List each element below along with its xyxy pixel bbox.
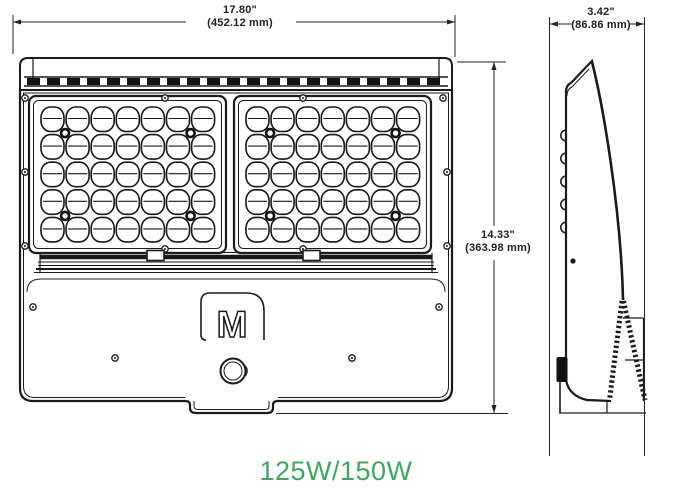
side-back-hatched [610, 301, 623, 400]
panel-screw [392, 212, 400, 220]
led-lens [167, 162, 190, 187]
led-lens [346, 162, 369, 187]
width-metric: (452.12 mm) [170, 17, 310, 30]
led-lens [192, 190, 215, 215]
led-lens [41, 107, 64, 132]
panel-screw [61, 129, 69, 137]
depth-metric: (86.86 mm) [545, 19, 657, 32]
led-lens [116, 135, 139, 160]
mounting-knockout [221, 359, 248, 384]
led-lens [141, 190, 164, 215]
led-lens [91, 162, 114, 187]
front-view: M [20, 58, 452, 413]
led-lens [192, 107, 215, 132]
led-lens [91, 135, 114, 160]
led-lens [397, 190, 420, 215]
dimensional-drawing: M [0, 0, 680, 497]
led-lens [141, 107, 164, 132]
led-lens [116, 107, 139, 132]
led-lens-grid-left [41, 107, 215, 242]
side-screw [570, 258, 575, 263]
svg-text:M: M [217, 304, 248, 345]
led-lens [192, 217, 215, 242]
led-lens [346, 107, 369, 132]
panel-screw [266, 212, 274, 220]
led-lens [271, 190, 294, 215]
led-lens [321, 135, 344, 160]
height-inches: 14.33" [456, 229, 540, 242]
led-lens [41, 190, 64, 215]
led-lens [271, 107, 294, 132]
led-lens [246, 162, 269, 187]
led-lens [91, 107, 114, 132]
led-lens [192, 135, 215, 160]
led-lens [141, 135, 164, 160]
led-lens [66, 217, 89, 242]
led-lens [91, 190, 114, 215]
led-lens [296, 162, 319, 187]
led-lens [116, 162, 139, 187]
led-lens [346, 190, 369, 215]
mount-bracket [623, 318, 644, 401]
led-lens [372, 217, 395, 242]
led-lens [271, 217, 294, 242]
led-lens-grid-right [246, 107, 420, 242]
latch-tab-right [303, 251, 320, 261]
line-art: M [0, 0, 680, 497]
side-view [557, 61, 647, 413]
led-lens [296, 135, 319, 160]
led-lens [41, 135, 64, 160]
led-lens [246, 217, 269, 242]
led-lens [66, 162, 89, 187]
led-lens [246, 190, 269, 215]
panel-screw [266, 129, 274, 137]
width-inches: 17.80" [170, 4, 310, 17]
led-lens [116, 217, 139, 242]
led-lens [397, 217, 420, 242]
led-lens [321, 190, 344, 215]
led-lens [271, 162, 294, 187]
panel-screw [61, 212, 69, 220]
led-lens [321, 162, 344, 187]
depth-dimension: 3.42" (86.86 mm) [545, 6, 657, 32]
led-lens [167, 135, 190, 160]
led-lens [296, 107, 319, 132]
side-back-curve [592, 62, 623, 300]
led-lens [372, 135, 395, 160]
led-lens [271, 135, 294, 160]
led-lens [167, 190, 190, 215]
led-lens [246, 135, 269, 160]
led-lens [167, 107, 190, 132]
led-lens [321, 217, 344, 242]
led-lens [66, 135, 89, 160]
cable-clamp [557, 357, 568, 382]
led-lens [346, 217, 369, 242]
brand-logo-m: M [201, 293, 264, 345]
led-lens [397, 162, 420, 187]
width-dimension: 17.80" (452.12 mm) [170, 4, 310, 30]
wattage-label: 125W/150W [216, 456, 456, 487]
latch-tab-left [147, 251, 164, 261]
led-lens [91, 217, 114, 242]
led-lens [397, 135, 420, 160]
panel-screw [187, 212, 195, 220]
led-lens [372, 107, 395, 132]
led-lens [167, 217, 190, 242]
led-lens [296, 190, 319, 215]
led-lens [192, 162, 215, 187]
led-lens [66, 107, 89, 132]
led-lens [296, 217, 319, 242]
led-lens [41, 217, 64, 242]
mount-arm-hatched [624, 301, 646, 400]
led-lens [41, 162, 64, 187]
top-heatsink-cap [20, 58, 452, 93]
led-lens [321, 107, 344, 132]
led-lens [141, 217, 164, 242]
led-lens [397, 107, 420, 132]
depth-inches: 3.42" [545, 6, 657, 19]
led-lens [346, 135, 369, 160]
panel-screw [392, 129, 400, 137]
led-lens [372, 190, 395, 215]
height-dimension: 14.33" (363.98 mm) [456, 229, 540, 255]
led-lens [246, 107, 269, 132]
led-lens [66, 190, 89, 215]
led-lens [372, 162, 395, 187]
led-lens [116, 190, 139, 215]
led-lens [141, 162, 164, 187]
panel-screw [187, 129, 195, 137]
height-metric: (363.98 mm) [456, 242, 540, 255]
